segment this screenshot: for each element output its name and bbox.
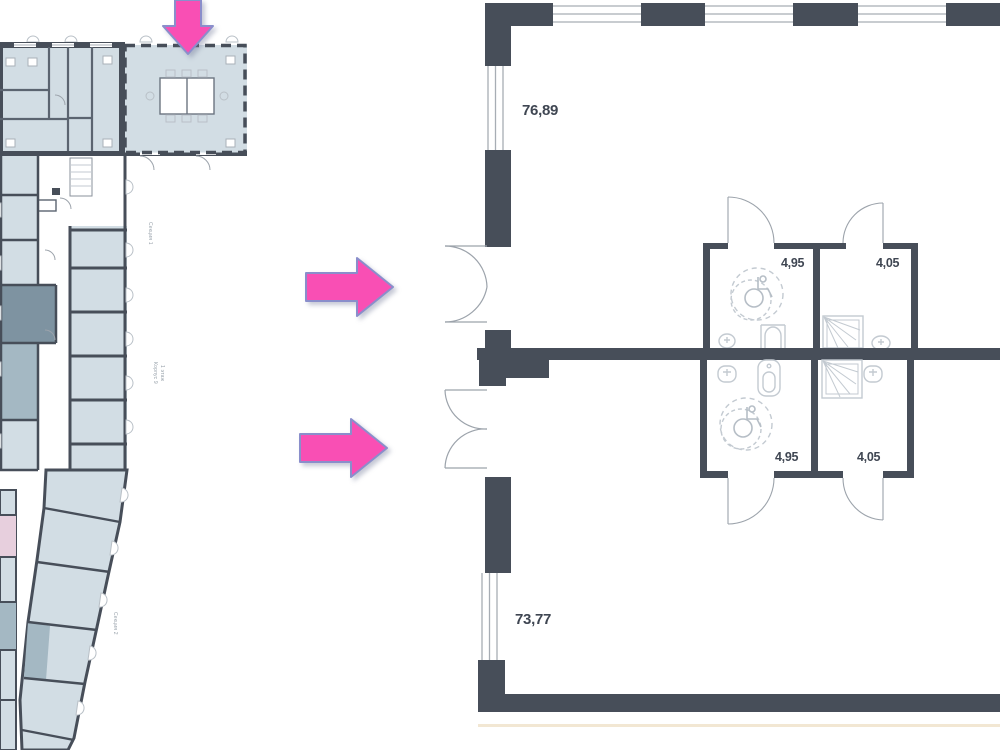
window [488, 66, 503, 150]
toilet-icon [758, 360, 780, 396]
wheelchair-icon [720, 398, 772, 450]
floor-label: 1 этаж [159, 365, 165, 382]
unit-top-area-label: 76,89 [522, 102, 558, 119]
party-wall [477, 348, 1000, 360]
building-label: Корпус 9 [152, 362, 158, 384]
bathroom-fixtures [718, 360, 882, 450]
window-bumps-top [27, 36, 238, 42]
unit-top-bath1-label: 4,95 [781, 256, 804, 270]
right-arrow-icon [300, 419, 387, 477]
unit-bottom-plan: 73,77 4,95 4,05 [445, 359, 1000, 727]
window-bumps-right [126, 180, 133, 434]
conference-table [160, 78, 214, 114]
section2-label: Секция 2 [112, 612, 118, 635]
floor-plan-canvas: Секция 1 Корпус 9 1 этаж Секция 2 [0, 0, 1000, 750]
pink-room [0, 516, 16, 556]
sink-icon [718, 366, 736, 382]
section1-label: Секция 1 [147, 222, 153, 245]
window [553, 6, 946, 22]
window [482, 573, 497, 660]
lower-wing [0, 470, 128, 750]
entrance-door [445, 246, 487, 322]
bathroom-door [728, 478, 883, 524]
unit-top-bath2-label: 4,05 [876, 256, 899, 270]
unit-bottom-area-label: 73,77 [515, 611, 551, 628]
unit-bottom-bath2-label: 4,05 [857, 450, 880, 464]
shower-icon [822, 360, 862, 398]
entrance-door [445, 390, 487, 468]
sink-icon [864, 366, 882, 382]
shower-icon [823, 316, 863, 348]
unit-top-plan: 76,89 4,95 4,05 [445, 3, 1000, 350]
bathroom-fixtures [719, 268, 890, 350]
floor-plan-drawing: Секция 1 Корпус 9 1 этаж Секция 2 [0, 0, 1000, 750]
right-arrow-icon [306, 258, 393, 316]
site-plan: Секция 1 Корпус 9 1 этаж Секция 2 [0, 36, 247, 750]
wheelchair-icon [731, 268, 783, 320]
baseline [478, 724, 1000, 727]
toilet-icon [761, 325, 785, 348]
unit-bottom-bath1-label: 4,95 [775, 450, 798, 464]
bathroom-door [728, 197, 883, 243]
vertical-wing [0, 156, 133, 470]
